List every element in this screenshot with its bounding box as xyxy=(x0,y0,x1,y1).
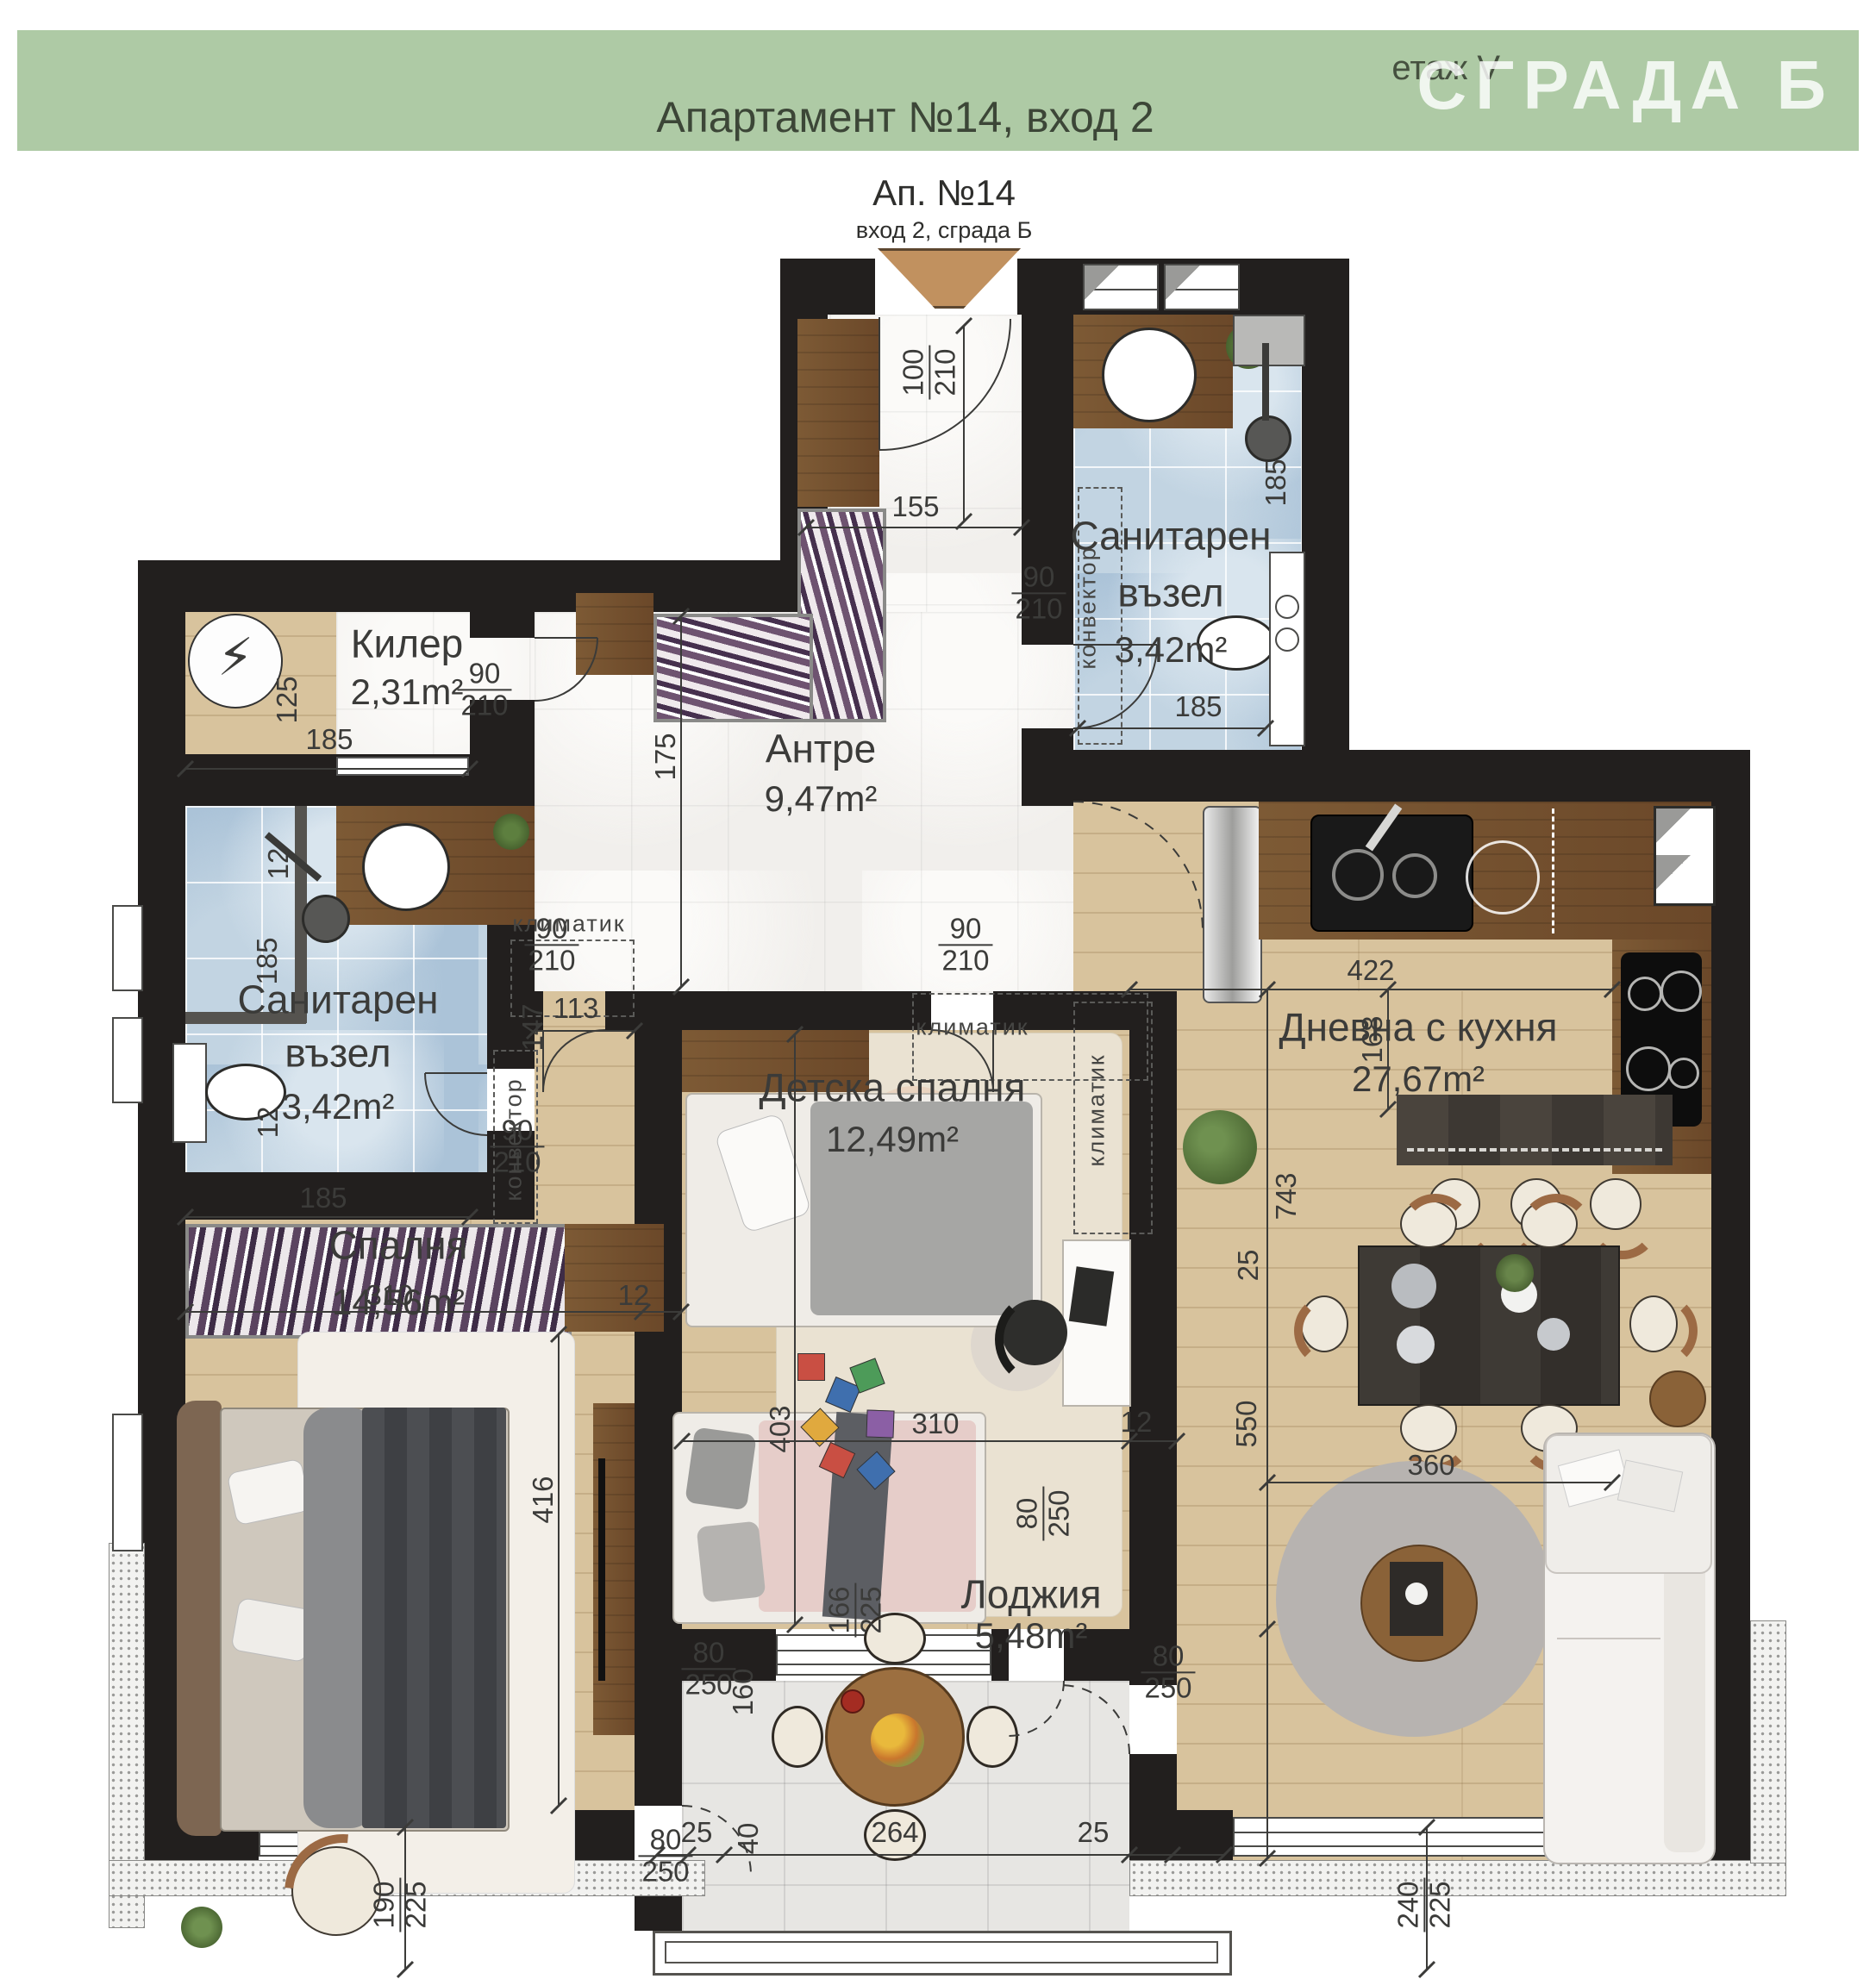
bath2-plant xyxy=(493,814,529,850)
room-label-loggia-0: Лоджия xyxy=(961,1570,1102,1620)
floorplan-page: етаж V Апартамент №14, вход 2 СГРАДА Б А… xyxy=(0,0,1876,1979)
dining-plate-0 xyxy=(1391,1264,1436,1308)
living-plant xyxy=(1183,1110,1257,1184)
kitchen-sink-bowl-b xyxy=(1392,853,1437,898)
bath1-cab-circle-b xyxy=(1275,627,1299,652)
dim-fraction-80-250-7: 80250 xyxy=(1141,1641,1195,1702)
dining-chair-top-a-arc xyxy=(1398,1194,1473,1268)
window-shade-1 xyxy=(1166,265,1200,300)
kids-bed2-pillow-b xyxy=(697,1520,766,1602)
antre-cabinet xyxy=(576,593,653,675)
frac-top: 100 xyxy=(898,345,929,399)
dim-label-12-4: 12 xyxy=(262,848,295,880)
hall-rack-horiz xyxy=(653,614,813,722)
bath1-shower-head xyxy=(1245,415,1291,462)
dim-fraction-100-210-8: 100210 xyxy=(898,345,960,399)
bath1-shower-pipe xyxy=(1262,343,1269,421)
note-label-3: конвектор xyxy=(1075,546,1102,669)
dim-label-403-13: 403 xyxy=(764,1405,797,1452)
dim-label-422-16: 422 xyxy=(1347,954,1394,987)
note-label-0: климатик xyxy=(512,911,625,938)
wall-segment-26 xyxy=(635,1629,682,1806)
dim-fraction-240-225-12: 240225 xyxy=(1393,1877,1454,1932)
dining-chair-right-arc xyxy=(1623,1294,1698,1368)
dim-label-185-2: 185 xyxy=(305,723,353,756)
room-label-kiler-1: 2,31m² xyxy=(351,671,464,713)
dim-label-310-14: 310 xyxy=(911,1408,959,1440)
room-label-antre-1: 9,47m² xyxy=(765,778,878,820)
dim-label-550-20: 550 xyxy=(1230,1400,1263,1447)
kids-toy-0 xyxy=(797,1353,825,1381)
dining-vase-plant xyxy=(1496,1254,1534,1292)
bath1-shower-panel xyxy=(1233,315,1305,366)
room-label-kiler-0: Килер xyxy=(351,619,464,669)
dim-label-155-0: 155 xyxy=(891,490,939,523)
window-left-c xyxy=(112,1414,143,1551)
wall-segment-7 xyxy=(1073,750,1302,802)
note-label-1: климатик xyxy=(916,1014,1029,1041)
frac-bottom: 225 xyxy=(854,1583,886,1637)
bath1-sink xyxy=(1102,328,1197,422)
room-label-bath2-1: възел xyxy=(285,1028,391,1078)
dim-label-12-9: 12 xyxy=(252,1107,285,1139)
loggia-flowers xyxy=(871,1714,924,1767)
wall-segment-30 xyxy=(1177,1810,1233,1862)
dim-fraction-90-210-1: 90210 xyxy=(1011,562,1066,623)
exterior-hatch-3 xyxy=(1750,1620,1786,1864)
dining-plate-3 xyxy=(1537,1318,1570,1351)
dim-fraction-166-225-9: 166225 xyxy=(824,1583,885,1637)
frac-bottom: 210 xyxy=(938,944,992,976)
dim-label-125-1: 125 xyxy=(271,676,303,723)
wall-segment-4 xyxy=(1302,259,1349,802)
frac-bottom: 250 xyxy=(1042,1486,1074,1540)
room-label-antre-0: Антре xyxy=(766,724,876,774)
bedroom-plant xyxy=(181,1907,222,1948)
kids-bed2-pillow-a xyxy=(685,1427,757,1510)
kitchen-sink-bowl-a xyxy=(1332,849,1384,901)
wall-segment-12 xyxy=(470,612,535,638)
kiler-elec-glyph: ⚡ xyxy=(217,627,252,688)
frac-top: 80 xyxy=(638,1825,692,1855)
wall-segment-8 xyxy=(1302,750,1750,802)
cooktop-burner-3 xyxy=(1668,1058,1699,1089)
wall-segment-6 xyxy=(1022,728,1073,806)
kitchen-island-dash xyxy=(1407,1148,1662,1152)
frac-bottom: 210 xyxy=(929,345,960,399)
kitchen-appliance-tri-b xyxy=(1656,855,1691,890)
dim-label-310-10: 310 xyxy=(366,1279,413,1312)
loggia-railing-inner xyxy=(665,1941,1218,1963)
window-left-b xyxy=(112,1017,143,1103)
frac-bottom: 250 xyxy=(681,1668,735,1700)
kiler-slide-door xyxy=(336,757,469,776)
dining-chair-top-b-arc xyxy=(1519,1194,1593,1268)
dim-label-12-11: 12 xyxy=(618,1279,650,1312)
loggia-chair-2 xyxy=(772,1706,823,1768)
frac-bottom: 250 xyxy=(1141,1671,1195,1703)
kitchen-fridge xyxy=(1203,806,1262,1003)
frac-bottom: 250 xyxy=(638,1855,692,1887)
bath2-cistern xyxy=(172,1043,207,1143)
bed-headboard xyxy=(177,1401,222,1836)
frac-top: 90 xyxy=(938,914,992,944)
entrance-arrow-icon xyxy=(878,248,1021,309)
header-floor: етаж V xyxy=(17,49,1500,88)
dim-label-360-21: 360 xyxy=(1407,1449,1454,1482)
dim-label-40-24: 40 xyxy=(732,1823,765,1855)
frac-top: 166 xyxy=(824,1583,854,1637)
room-label-kids-0: Детска спалня xyxy=(760,1063,1026,1113)
kitchen-island xyxy=(1397,1095,1673,1165)
dim-label-168-17: 168 xyxy=(1356,1015,1389,1063)
entry-apartment-label: Ап. №14 xyxy=(828,172,1060,214)
wall-segment-9 xyxy=(1711,750,1750,1862)
entry-sub-label: вход 2, сграда Б xyxy=(802,217,1086,244)
dim-label-185-6: 185 xyxy=(299,1182,347,1214)
dim-fraction-80-250-5: 80250 xyxy=(638,1825,692,1886)
frac-top: 240 xyxy=(1393,1877,1423,1932)
room-label-bedroom-0: Спалня xyxy=(329,1220,468,1270)
frac-top: 90 xyxy=(457,659,511,689)
window-shade-0 xyxy=(1085,265,1119,300)
room-label-living-0: Дневна с кухня xyxy=(1279,1002,1557,1052)
cooktop-burner-0 xyxy=(1628,977,1662,1011)
bedroom-wardrobe-wood xyxy=(565,1224,664,1332)
wall-segment-1 xyxy=(780,259,875,315)
kids-toy-4 xyxy=(866,1409,894,1438)
dim-fraction-80-250-6: 80250 xyxy=(681,1638,735,1699)
living-tray-vase xyxy=(1405,1583,1428,1605)
window-left-a xyxy=(112,905,143,991)
bedroom-tv xyxy=(598,1458,605,1681)
kitchen-appliance-tri-a xyxy=(1656,808,1691,843)
dim-label-185-5: 185 xyxy=(251,937,284,984)
exterior-hatch-2 xyxy=(1129,1860,1786,1896)
dining-plate-1 xyxy=(1397,1326,1435,1364)
dim-label-264-25: 264 xyxy=(871,1816,918,1849)
room-label-bath1-1: възел xyxy=(1117,568,1223,618)
frac-top: 90 xyxy=(1011,562,1066,592)
cooktop-burner-1 xyxy=(1660,971,1702,1012)
frac-top: 80 xyxy=(1012,1486,1042,1540)
frac-top: 80 xyxy=(1141,1641,1195,1671)
dim-label-113-7: 113 xyxy=(553,992,599,1025)
dim-label-175-3: 175 xyxy=(649,733,682,780)
dim-label-12-15: 12 xyxy=(1121,1406,1153,1439)
wall-segment-2 xyxy=(1017,259,1073,315)
bath1-cab-circle-a xyxy=(1275,595,1299,619)
dim-label-185-28: 185 xyxy=(1260,459,1292,506)
dim-label-147-8: 147 xyxy=(516,1003,549,1051)
dim-label-25-26: 25 xyxy=(1078,1816,1110,1849)
frac-top: 190 xyxy=(369,1877,399,1932)
dim-label-743-19: 743 xyxy=(1270,1172,1303,1220)
frac-bottom: 225 xyxy=(1423,1877,1455,1932)
kitchen-dash-divider xyxy=(1552,808,1556,933)
frac-bottom: 225 xyxy=(399,1877,431,1932)
window-kids-loggia-mullion xyxy=(778,1664,990,1665)
frac-bottom: 210 xyxy=(1011,592,1066,624)
dim-fraction-90-210-0: 90210 xyxy=(457,659,511,720)
bath2-sink xyxy=(362,823,450,911)
header-banner: етаж V Апартамент №14, вход 2 СГРАДА Б xyxy=(17,30,1859,151)
wall-segment-19 xyxy=(605,991,931,1030)
frac-top: 80 xyxy=(681,1638,735,1668)
dim-label-185-27: 185 xyxy=(1174,690,1222,723)
room-label-bath1-2: 3,42m² xyxy=(1115,629,1228,671)
room-label-loggia-1: 5,48m² xyxy=(975,1615,1088,1657)
room-label-living-1: 27,67m² xyxy=(1352,1058,1485,1100)
dim-fraction-190-225-11: 190225 xyxy=(369,1877,430,1932)
dim-label-25-18: 25 xyxy=(1232,1250,1265,1282)
kids-chair-arc xyxy=(995,1291,1091,1388)
dim-fraction-80-250-10: 80250 xyxy=(1012,1486,1073,1540)
dining-chair-left-arc xyxy=(1294,1294,1368,1368)
frac-bottom: 210 xyxy=(457,689,511,721)
living-side-table xyxy=(1649,1370,1706,1427)
note-label-2: климатик xyxy=(1084,1053,1110,1166)
wall-segment-10 xyxy=(138,560,828,612)
bath2-shower-head xyxy=(302,895,350,943)
dim-fraction-90-210-3: 90210 xyxy=(938,914,992,975)
note-label-4: конвектор xyxy=(501,1077,528,1201)
dim-label-416-12: 416 xyxy=(527,1476,560,1523)
hall-cabinet xyxy=(797,319,879,507)
bed-blanket xyxy=(362,1408,506,1828)
sofa-seat-line xyxy=(1557,1638,1660,1639)
loggia-chair-3 xyxy=(966,1706,1018,1768)
frac-bottom: 210 xyxy=(524,944,578,976)
cooktop-burner-2 xyxy=(1626,1046,1671,1091)
loggia-cup xyxy=(841,1689,865,1714)
room-label-kids-1: 12,49m² xyxy=(826,1119,959,1160)
header-building: СГРАДА Б xyxy=(1416,46,1835,125)
room-label-bath2-2: 3,42m² xyxy=(282,1086,395,1127)
wall-segment-33 xyxy=(1129,1754,1177,1862)
kitchen-decor-circle xyxy=(1466,840,1540,915)
